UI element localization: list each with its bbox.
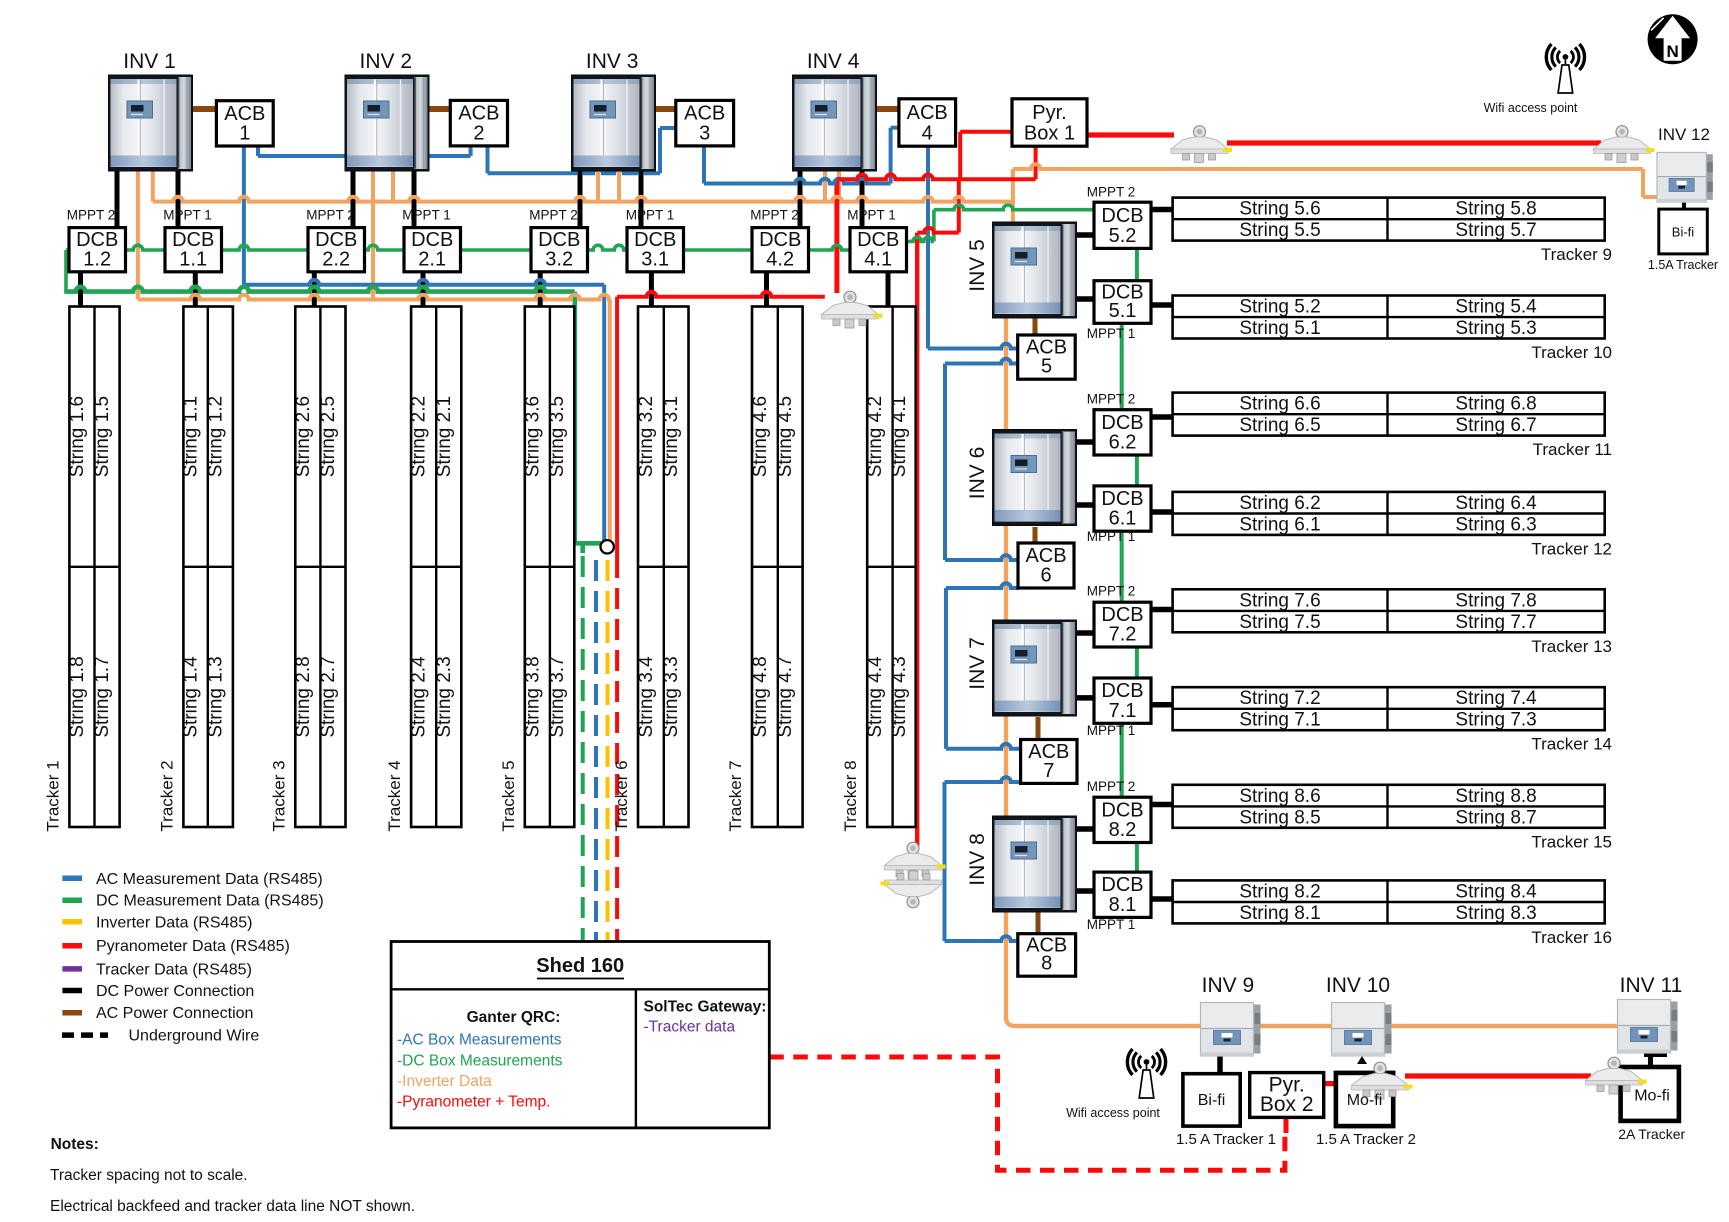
svg-text:String 3.5: String 3.5 xyxy=(547,396,568,477)
svg-text:INV 2: INV 2 xyxy=(360,50,413,73)
svg-text:ACB: ACB xyxy=(684,103,725,125)
svg-text:String 5.2: String 5.2 xyxy=(1239,297,1320,318)
svg-text:1: 1 xyxy=(239,123,250,145)
svg-text:MPPT 2: MPPT 2 xyxy=(750,208,799,223)
svg-text:DCB: DCB xyxy=(1101,874,1143,896)
svg-text:DCB: DCB xyxy=(1101,488,1143,510)
svg-text:Tracker 14: Tracker 14 xyxy=(1531,735,1612,754)
svg-text:Ganter QRC:: Ganter QRC: xyxy=(467,1009,561,1026)
svg-text:Tracker 7: Tracker 7 xyxy=(726,760,745,831)
svg-text:INV 6: INV 6 xyxy=(966,447,989,500)
svg-text:AC Power Connection: AC Power Connection xyxy=(96,1005,253,1022)
svg-text:ACB: ACB xyxy=(224,103,265,125)
svg-text:MPPT 1: MPPT 1 xyxy=(847,208,896,223)
svg-text:Tracker 13: Tracker 13 xyxy=(1531,637,1612,656)
svg-text:INV 10: INV 10 xyxy=(1326,974,1390,997)
svg-text:Tracker 10: Tracker 10 xyxy=(1531,343,1612,362)
svg-text:INV 12: INV 12 xyxy=(1658,125,1710,144)
svg-text:Tracker 11: Tracker 11 xyxy=(1533,440,1612,459)
svg-text:4.1: 4.1 xyxy=(864,248,892,270)
svg-text:String 5.7: String 5.7 xyxy=(1455,220,1536,241)
svg-text:Electrical backfeed and tracke: Electrical backfeed and tracker data lin… xyxy=(50,1198,415,1215)
svg-text:String 1.6: String 1.6 xyxy=(67,396,88,477)
svg-text:Pyr.: Pyr. xyxy=(1032,102,1066,124)
svg-text:String 8.7: String 8.7 xyxy=(1455,807,1536,828)
svg-text:String 4.4: String 4.4 xyxy=(865,656,886,738)
svg-text:MPPT 2: MPPT 2 xyxy=(1087,185,1136,200)
svg-text:MPPT 1: MPPT 1 xyxy=(402,208,451,223)
svg-text:String 8.8: String 8.8 xyxy=(1455,786,1536,807)
svg-text:6.1: 6.1 xyxy=(1109,508,1137,530)
svg-text:String 6.7: String 6.7 xyxy=(1455,415,1536,436)
svg-text:4.2: 4.2 xyxy=(766,248,794,270)
svg-text:Mo-fi: Mo-fi xyxy=(1634,1088,1670,1105)
svg-text:MPPT 1: MPPT 1 xyxy=(1087,723,1136,738)
svg-text:String 6.6: String 6.6 xyxy=(1239,394,1320,415)
svg-text:Tracker 2: Tracker 2 xyxy=(157,760,176,831)
svg-text:Wifi access point: Wifi access point xyxy=(1066,1106,1160,1120)
svg-text:String 8.5: String 8.5 xyxy=(1239,807,1320,828)
svg-text:INV 4: INV 4 xyxy=(807,50,860,73)
svg-text:String 1.2: String 1.2 xyxy=(205,396,226,477)
svg-text:3.1: 3.1 xyxy=(641,248,669,270)
svg-text:MPPT 1: MPPT 1 xyxy=(1087,326,1136,341)
svg-text:7.1: 7.1 xyxy=(1109,700,1137,722)
svg-text:String 7.1: String 7.1 xyxy=(1239,710,1320,731)
svg-text:Bi-fi: Bi-fi xyxy=(1198,1092,1226,1109)
svg-text:String 6.2: String 6.2 xyxy=(1239,493,1320,514)
svg-text:String 7.4: String 7.4 xyxy=(1455,688,1537,709)
svg-text:MPPT 1: MPPT 1 xyxy=(1087,529,1136,544)
svg-text:INV 9: INV 9 xyxy=(1202,974,1255,997)
svg-text:5.1: 5.1 xyxy=(1109,300,1137,322)
svg-text:Notes:: Notes: xyxy=(51,1136,99,1153)
svg-text:Tracker 5: Tracker 5 xyxy=(499,760,518,831)
svg-text:Tracker 15: Tracker 15 xyxy=(1531,832,1612,851)
svg-text:Wifi access point: Wifi access point xyxy=(1484,101,1578,115)
svg-text:MPPT 1: MPPT 1 xyxy=(626,208,675,223)
svg-text:String 4.2: String 4.2 xyxy=(865,396,886,477)
svg-text:Shed 160: Shed 160 xyxy=(536,955,624,977)
svg-text:String 3.7: String 3.7 xyxy=(547,656,568,737)
svg-text:Tracker 3: Tracker 3 xyxy=(269,760,288,831)
svg-text:-Tracker data: -Tracker data xyxy=(644,1019,736,1036)
svg-text:String 7.6: String 7.6 xyxy=(1239,590,1320,611)
svg-text:ACB: ACB xyxy=(458,103,499,125)
svg-text:String 5.8: String 5.8 xyxy=(1455,199,1536,220)
svg-text:MPPT 2: MPPT 2 xyxy=(529,208,578,223)
svg-text:INV 1: INV 1 xyxy=(123,50,176,73)
svg-text:8: 8 xyxy=(1041,953,1052,975)
svg-text:Tracker spacing not to scale.: Tracker spacing not to scale. xyxy=(50,1167,248,1184)
svg-text:1.5A Tracker: 1.5A Tracker xyxy=(1648,258,1718,272)
svg-text:String 3.4: String 3.4 xyxy=(636,656,657,738)
svg-text:5: 5 xyxy=(1041,356,1052,378)
svg-text:5.2: 5.2 xyxy=(1109,225,1137,247)
svg-text:String 1.7: String 1.7 xyxy=(92,656,113,737)
svg-text:String 6.3: String 6.3 xyxy=(1455,514,1536,535)
svg-text:String 1.1: String 1.1 xyxy=(181,396,202,477)
svg-text:MPPT 2: MPPT 2 xyxy=(306,208,355,223)
svg-text:String 2.1: String 2.1 xyxy=(434,396,455,477)
svg-text:INV 5: INV 5 xyxy=(966,239,989,292)
svg-text:String 1.8: String 1.8 xyxy=(67,656,88,737)
svg-text:3: 3 xyxy=(699,122,710,144)
svg-text:MPPT 2: MPPT 2 xyxy=(67,208,116,223)
svg-text:Tracker Data (RS485): Tracker Data (RS485) xyxy=(96,961,252,978)
svg-text:Tracker 16: Tracker 16 xyxy=(1531,928,1612,947)
svg-text:N: N xyxy=(1666,42,1678,61)
svg-text:String 3.6: String 3.6 xyxy=(522,396,543,477)
svg-text:Tracker 4: Tracker 4 xyxy=(385,760,404,831)
svg-text:DCB: DCB xyxy=(1101,205,1143,227)
svg-text:2.1: 2.1 xyxy=(418,248,446,270)
svg-text:DC Power Connection: DC Power Connection xyxy=(96,983,254,1000)
svg-text:INV 11: INV 11 xyxy=(1620,974,1683,997)
svg-text:String 4.7: String 4.7 xyxy=(775,656,796,737)
svg-text:1.1: 1.1 xyxy=(179,248,207,270)
svg-text:-Pyranometer + Temp.: -Pyranometer + Temp. xyxy=(397,1094,551,1111)
svg-text:Box 1: Box 1 xyxy=(1024,123,1075,145)
svg-text:SolTec Gateway:: SolTec Gateway: xyxy=(644,999,767,1016)
svg-text:String 2.2: String 2.2 xyxy=(409,396,430,477)
svg-text:String 5.1: String 5.1 xyxy=(1239,318,1320,339)
svg-text:DCB: DCB xyxy=(1101,412,1143,434)
svg-text:String 1.3: String 1.3 xyxy=(205,656,226,737)
svg-text:Inverter Data (RS485): Inverter Data (RS485) xyxy=(96,914,253,931)
svg-text:Mo-fi: Mo-fi xyxy=(1347,1092,1383,1109)
svg-text:-AC Box Measurements: -AC Box Measurements xyxy=(397,1032,562,1049)
svg-text:String 2.7: String 2.7 xyxy=(318,656,339,737)
svg-text:MPPT 1: MPPT 1 xyxy=(1087,917,1136,932)
svg-text:7.2: 7.2 xyxy=(1109,624,1137,646)
svg-text:INV 8: INV 8 xyxy=(966,833,989,886)
svg-text:Tracker 1: Tracker 1 xyxy=(43,760,62,831)
svg-text:String 7.3: String 7.3 xyxy=(1455,710,1536,731)
svg-text:Tracker 9: Tracker 9 xyxy=(1541,245,1612,264)
svg-text:7: 7 xyxy=(1043,760,1054,782)
svg-text:DCB: DCB xyxy=(1101,680,1143,702)
svg-text:String 2.3: String 2.3 xyxy=(434,656,455,737)
svg-text:8.1: 8.1 xyxy=(1109,894,1137,916)
svg-text:INV 7: INV 7 xyxy=(966,637,989,690)
svg-text:String 8.3: String 8.3 xyxy=(1455,903,1536,924)
svg-text:2.2: 2.2 xyxy=(322,248,350,270)
svg-text:String 4.8: String 4.8 xyxy=(750,656,771,737)
svg-text:String 8.4: String 8.4 xyxy=(1455,881,1537,902)
svg-text:1.5 A Tracker 2: 1.5 A Tracker 2 xyxy=(1316,1131,1416,1148)
svg-text:String 3.8: String 3.8 xyxy=(522,656,543,737)
svg-text:MPPT 2: MPPT 2 xyxy=(1087,584,1136,599)
svg-text:1.5 A Tracker 1: 1.5 A Tracker 1 xyxy=(1176,1131,1276,1148)
svg-text:String 7.7: String 7.7 xyxy=(1455,612,1536,633)
svg-text:String 1.4: String 1.4 xyxy=(181,656,202,738)
svg-text:Pyranometer Data (RS485): Pyranometer Data (RS485) xyxy=(96,938,290,955)
svg-text:6: 6 xyxy=(1040,565,1051,587)
svg-text:String 7.5: String 7.5 xyxy=(1239,612,1320,633)
svg-text:String 2.8: String 2.8 xyxy=(293,656,314,737)
svg-text:MPPT 1: MPPT 1 xyxy=(163,208,212,223)
svg-text:AC Measurement Data (RS485): AC Measurement Data (RS485) xyxy=(96,871,323,888)
svg-text:String 6.4: String 6.4 xyxy=(1455,493,1537,514)
svg-text:1.2: 1.2 xyxy=(83,248,111,270)
svg-text:2: 2 xyxy=(473,122,484,144)
svg-text:String 3.1: String 3.1 xyxy=(661,396,682,477)
svg-text:String 4.6: String 4.6 xyxy=(750,396,771,477)
svg-text:String 7.2: String 7.2 xyxy=(1239,688,1320,709)
svg-text:String 8.6: String 8.6 xyxy=(1239,786,1320,807)
svg-text:String 6.5: String 6.5 xyxy=(1239,415,1320,436)
svg-text:String 8.2: String 8.2 xyxy=(1239,881,1320,902)
svg-text:String 2.4: String 2.4 xyxy=(409,656,430,738)
svg-text:String 2.5: String 2.5 xyxy=(318,396,339,477)
svg-text:Underground Wire: Underground Wire xyxy=(129,1028,260,1045)
svg-text:Tracker 6: Tracker 6 xyxy=(612,760,631,831)
svg-text:-Inverter Data: -Inverter Data xyxy=(397,1073,492,1090)
svg-text:String 3.3: String 3.3 xyxy=(661,656,682,737)
svg-text:3.2: 3.2 xyxy=(545,248,573,270)
svg-text:String 3.2: String 3.2 xyxy=(636,396,657,477)
svg-text:Tracker 8: Tracker 8 xyxy=(841,760,860,831)
svg-text:4: 4 xyxy=(922,123,933,145)
svg-text:String 2.6: String 2.6 xyxy=(293,396,314,477)
svg-text:6.2: 6.2 xyxy=(1109,432,1137,454)
svg-text:8.2: 8.2 xyxy=(1109,819,1137,841)
svg-text:MPPT 2: MPPT 2 xyxy=(1087,392,1136,407)
svg-text:String 4.5: String 4.5 xyxy=(775,396,796,477)
svg-text:Bi-fi: Bi-fi xyxy=(1672,225,1695,240)
svg-text:String 5.3: String 5.3 xyxy=(1455,318,1536,339)
svg-text:ACB: ACB xyxy=(907,102,948,124)
svg-text:Box 2: Box 2 xyxy=(1260,1093,1314,1116)
svg-text:String 5.5: String 5.5 xyxy=(1239,220,1320,241)
svg-text:String 7.8: String 7.8 xyxy=(1455,590,1536,611)
svg-text:Tracker 12: Tracker 12 xyxy=(1531,539,1612,558)
svg-text:String 5.4: String 5.4 xyxy=(1455,297,1537,318)
svg-text:MPPT 2: MPPT 2 xyxy=(1087,779,1136,794)
svg-text:-DC Box Measurements: -DC Box Measurements xyxy=(397,1053,563,1070)
svg-text:2A Tracker: 2A Tracker xyxy=(1618,1126,1685,1142)
svg-text:DC Measurement Data (RS485): DC Measurement Data (RS485) xyxy=(96,893,324,910)
svg-text:String 4.3: String 4.3 xyxy=(889,656,910,737)
svg-text:String 6.8: String 6.8 xyxy=(1455,394,1536,415)
svg-text:String 5.6: String 5.6 xyxy=(1239,199,1320,220)
svg-text:String 8.1: String 8.1 xyxy=(1239,903,1320,924)
svg-text:String 6.1: String 6.1 xyxy=(1239,514,1320,535)
svg-text:INV 3: INV 3 xyxy=(586,50,639,73)
svg-text:String 4.1: String 4.1 xyxy=(889,396,910,477)
svg-text:String 1.5: String 1.5 xyxy=(92,396,113,477)
